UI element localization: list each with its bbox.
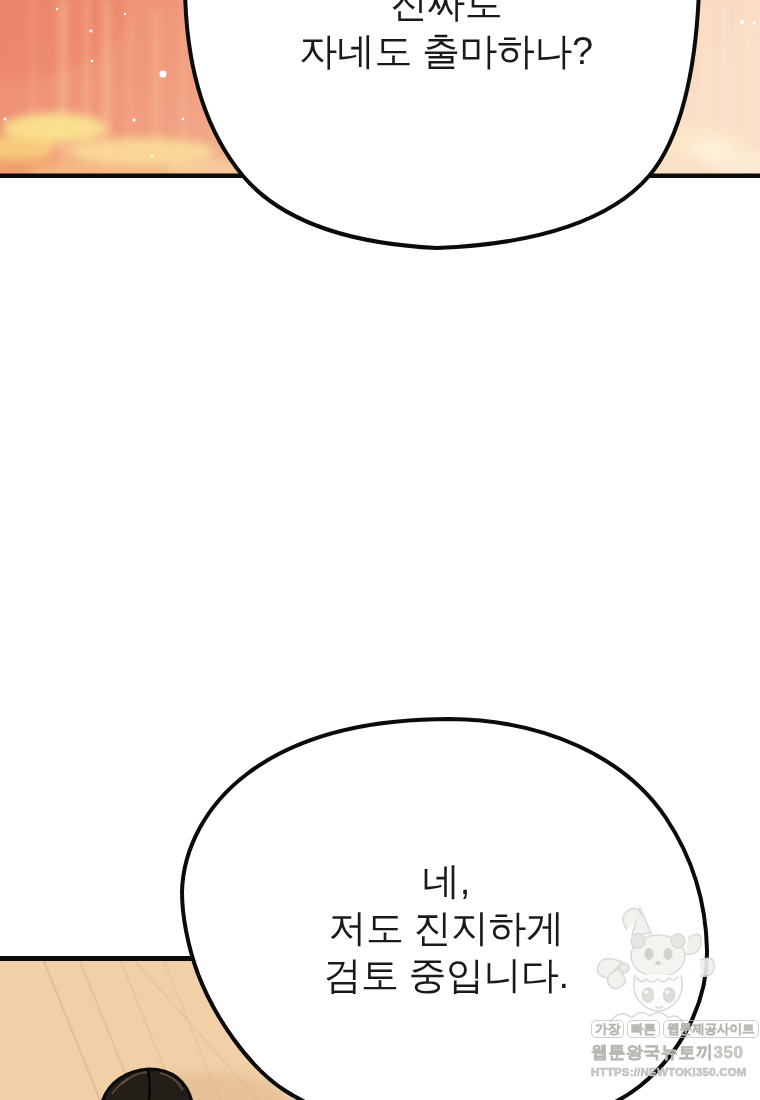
watermark-tagline-word: 웹툰제공사이트 — [663, 1020, 759, 1038]
mascot-hood-ear — [671, 934, 685, 948]
mascot-eye — [664, 988, 675, 1002]
mascot-bow-knot — [619, 963, 629, 973]
webtoon-page: 진짜로 자네도 출마하나? 네, 저도 진지하게 검토 중입니다. 가장 빠른 … — [0, 0, 760, 1100]
dialogue-line: 검토 중입니다. — [323, 952, 568, 999]
mascot-hood-nose — [655, 961, 661, 965]
mascot-hood-eye — [645, 948, 654, 960]
watermark-site-name: 웹툰왕국뉴토끼350 — [591, 1041, 760, 1064]
watermark-tagline-word: 빠른 — [627, 1020, 660, 1038]
mascot-hood-ear — [631, 934, 645, 948]
bubble-bottom-text: 네, 저도 진지하게 검토 중입니다. — [323, 858, 568, 999]
dialogue-line: 자네도 출마하나? — [299, 27, 592, 75]
dialogue-line: 네, — [323, 858, 568, 905]
site-watermark: 가장 빠른 웹툰제공사이트 웹툰왕국뉴토끼350 HTTPS://NEWTOKI… — [591, 1020, 760, 1078]
mascot-eye — [643, 988, 654, 1002]
dialogue-line: 저도 진지하게 — [323, 905, 568, 952]
watermark-tagline-word: 가장 — [591, 1020, 624, 1038]
bubble-top-text: 진짜로 자네도 출마하나? — [299, 0, 592, 75]
dialogue-line: 진짜로 — [299, 0, 592, 27]
watermark-tagline: 가장 빠른 웹툰제공사이트 — [591, 1020, 760, 1038]
mascot-ribbon — [700, 958, 714, 976]
watermark-site-url: HTTPS://NEWTOKI350.COM — [591, 1066, 760, 1078]
mascot-hood-eye — [664, 948, 673, 960]
